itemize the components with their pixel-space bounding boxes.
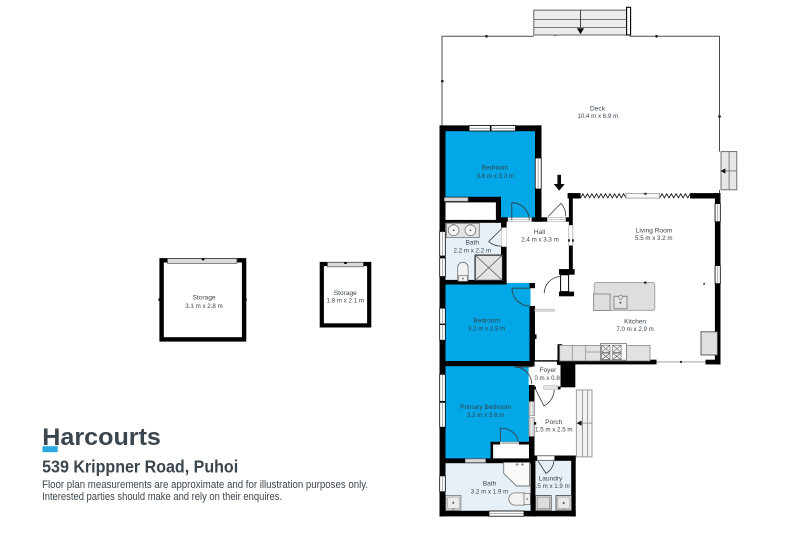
svg-text:2.2 m x 2.2 m: 2.2 m x 2.2 m bbox=[454, 248, 491, 255]
svg-text:Kitchen: Kitchen bbox=[624, 318, 646, 325]
svg-text:5.5 m x 3.2 m: 5.5 m x 3.2 m bbox=[635, 235, 672, 242]
svg-text:Storage: Storage bbox=[192, 295, 215, 302]
svg-text:Bedroom: Bedroom bbox=[473, 317, 500, 324]
svg-text:Floor plan measurements are ap: Floor plan measurements are approximate … bbox=[42, 479, 368, 491]
svg-text:3.2 m x 3.6 m: 3.2 m x 3.6 m bbox=[467, 412, 504, 419]
svg-text:Bath: Bath bbox=[483, 481, 497, 488]
svg-text:1.8 m x 2.1 m: 1.8 m x 2.1 m bbox=[327, 298, 364, 305]
svg-text:Bath: Bath bbox=[466, 239, 480, 246]
svg-text:Living Room: Living Room bbox=[636, 227, 673, 234]
svg-text:Hall: Hall bbox=[534, 229, 546, 236]
svg-text:Bedroom: Bedroom bbox=[482, 164, 509, 171]
svg-text:1.5 m x 1.9 m: 1.5 m x 1.9 m bbox=[532, 483, 569, 490]
svg-text:Porch: Porch bbox=[545, 419, 563, 426]
svg-text:Foyer: Foyer bbox=[539, 367, 557, 374]
svg-text:539 Krippner Road, Puhoi: 539 Krippner Road, Puhoi bbox=[42, 456, 238, 476]
svg-text:Primary Bedroom: Primary Bedroom bbox=[460, 404, 512, 411]
svg-text:Storage: Storage bbox=[334, 290, 357, 297]
svg-text:Harcourts: Harcourts bbox=[42, 424, 161, 451]
svg-text:Interested parties should make: Interested parties should make and rely … bbox=[42, 491, 282, 503]
svg-text:2.4 m x 3.3 m: 2.4 m x 3.3 m bbox=[521, 236, 558, 243]
svg-text:3.6 m x 3.3 m: 3.6 m x 3.3 m bbox=[477, 173, 514, 180]
svg-text:1.5 m x 2.5 m: 1.5 m x 2.5 m bbox=[535, 426, 572, 433]
svg-text:3.1 m x 2.8 m: 3.1 m x 2.8 m bbox=[185, 303, 222, 310]
svg-text:3.2 m x 1.9 m: 3.2 m x 1.9 m bbox=[471, 489, 508, 496]
svg-text:10.4 m x 6.9 m: 10.4 m x 6.9 m bbox=[577, 113, 618, 120]
svg-text:7.0 m x 2.9 m: 7.0 m x 2.9 m bbox=[616, 326, 653, 333]
svg-text:3.2 m x 2.9 m: 3.2 m x 2.9 m bbox=[468, 326, 505, 333]
svg-text:Laundry: Laundry bbox=[539, 475, 564, 482]
svg-text:Deck: Deck bbox=[590, 106, 606, 113]
